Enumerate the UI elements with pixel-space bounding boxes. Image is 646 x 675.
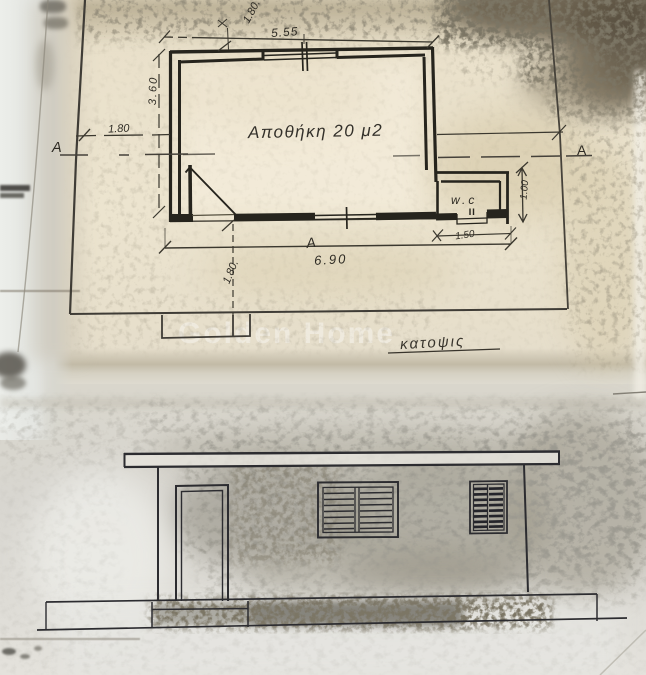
svg-text:6.90: 6.90 [314,251,348,268]
svg-text:A: A [51,140,62,156]
svg-text:3.60: 3.60 [147,76,160,106]
svg-text:1.00: 1.00 [519,179,532,200]
svg-text:1.80: 1.80 [108,122,131,135]
svg-text:w.c: w.c [451,193,477,207]
svg-text:5.55: 5.55 [271,24,299,40]
svg-text:A: A [577,142,587,158]
svg-text:Αποθήκη 20 μ2: Αποθήκη 20 μ2 [247,121,383,142]
